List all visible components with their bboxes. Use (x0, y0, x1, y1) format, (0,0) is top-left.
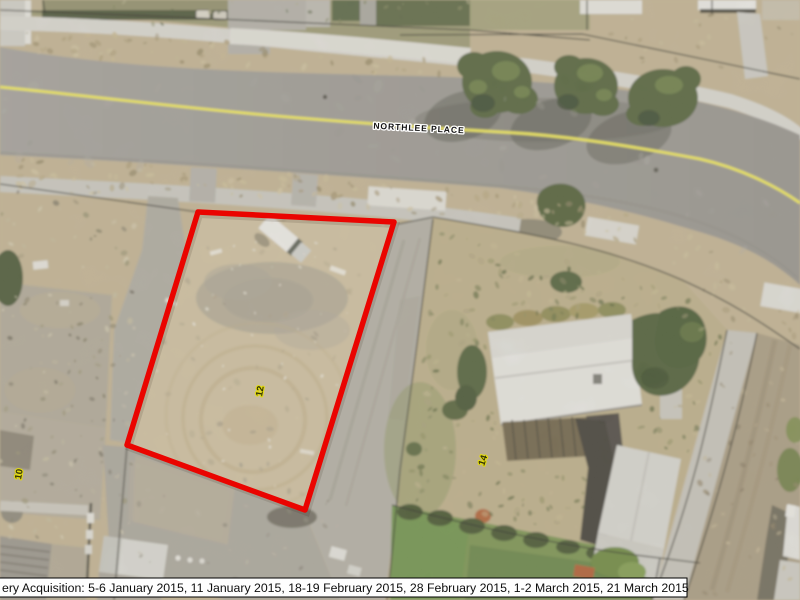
svg-text:ery Acquisition: 5-6 January 2: ery Acquisition: 5-6 January 2015, 11 Ja… (2, 581, 689, 595)
svg-text:12: 12 (254, 385, 267, 397)
svg-text:10: 10 (13, 468, 26, 480)
